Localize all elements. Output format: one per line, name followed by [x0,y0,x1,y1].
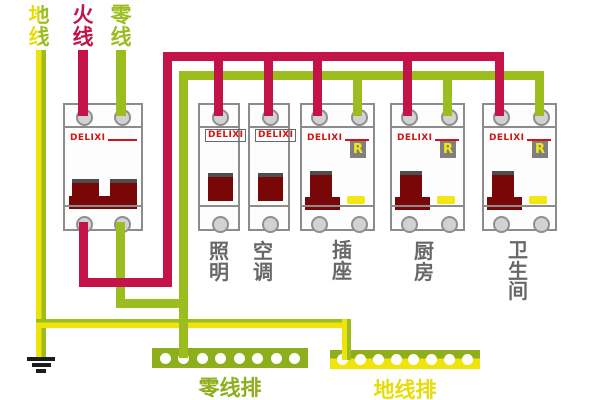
switch-handle-base[interactable] [395,197,430,210]
breaker-air-conditioner: DELIXI [248,103,290,231]
neutral-distribution-bus [179,71,544,80]
divider [483,126,556,128]
switch-handle[interactable] [492,171,514,197]
circuit-label-lighting: 照明 [208,241,230,282]
ground-bus-bar [330,350,480,369]
divider [301,126,374,128]
rcd-badge: R [440,141,456,158]
bus-bar-hole [408,354,419,365]
trip-indicator [437,196,455,204]
ground-wire-horizontal [36,319,351,328]
wiring-diagram: 地线 火线 零线 DELIXI [0,0,600,400]
bus-bar-hole [462,354,473,365]
neutral-riser-to-busbar [179,71,188,358]
switch-bar[interactable] [69,196,137,209]
ground-bus-label: 地线排 [330,374,480,400]
neutral-drop-socket [353,80,362,116]
brand-underline [108,139,137,141]
divider [483,205,556,207]
divider [249,205,289,207]
live-drop-kitchen [403,61,412,116]
bus-bar-hole [215,353,226,364]
breaker-socket: DELIXI R [300,103,375,231]
brand-label: DELIXI [397,134,432,143]
earth-symbol-bar1 [27,357,55,361]
terminal [351,216,368,233]
rcd-badge: R [350,141,366,158]
live-drop-socket [313,61,322,116]
breaker-kitchen: DELIXI R [390,103,465,231]
neutral-main-output-horizontal [116,299,188,308]
live-drop-lighting [214,61,223,116]
breaker-bathroom: DELIXI R [482,103,557,231]
live-drop-bathroom [495,52,504,116]
live-wire-label: 火线 [71,5,95,48]
breaker-main: DELIXI [63,103,143,231]
divider [199,205,239,207]
brand-row: DELIXI [70,131,137,143]
divider [391,126,464,128]
bus-bar-hole [271,353,282,364]
bus-bar-hole [197,353,208,364]
brand-label: DELIXI [489,134,524,143]
neutral-main-output-vertical [116,222,125,308]
terminal [212,216,229,233]
divider [301,205,374,207]
trip-indicator [347,196,365,204]
brand-label: DELIXI [205,129,246,142]
bus-bar-hole [252,353,263,364]
ground-wire-vertical [36,50,46,358]
neutral-wire-label: 零线 [109,5,133,48]
divider [249,126,289,128]
brand-label: DELIXI [70,134,105,143]
switch-handle-base[interactable] [305,197,340,210]
neutral-bus-bar [152,348,308,368]
rcd-badge: R [532,141,548,158]
live-main-output-horizontal [79,278,172,287]
live-drop-air-conditioner [264,61,273,116]
brand-label: DELIXI [307,134,342,143]
neutral-bus-label: 零线排 [152,372,308,400]
terminal [493,216,510,233]
bus-bar-hole [373,354,384,365]
earth-symbol-bar2 [32,363,51,367]
circuit-label-bathroom: 卫生间 [507,240,529,302]
terminal [311,216,328,233]
breaker-lighting: DELIXI [198,103,240,231]
trip-indicator [529,196,547,204]
brand-label: DELIXI [255,129,296,142]
bus-bar-hole [160,353,171,364]
divider [64,126,142,128]
ground-wire-label: 地线 [27,5,51,48]
switch-handle-base[interactable] [487,197,522,210]
circuit-label-kitchen: 厨房 [413,241,435,282]
terminal [441,216,458,233]
bus-bar-hole [355,354,366,365]
circuit-label-air-conditioner: 空调 [252,241,274,282]
bus-bar-hole [391,354,402,365]
circuit-label-socket: 插座 [331,240,353,281]
live-supply-wire [78,50,88,116]
earth-symbol-bar3 [36,369,46,373]
divider [199,126,239,128]
neutral-drop-kitchen [443,80,452,116]
ground-wire-busbar-drop [342,319,351,360]
switch-handle[interactable] [258,173,283,201]
switch-handle[interactable] [400,171,422,197]
divider [64,205,142,207]
neutral-supply-wire [116,50,126,116]
live-distribution-bus [163,52,504,61]
switch-handle[interactable] [310,171,332,197]
bus-bar-hole [289,353,300,364]
terminal [401,216,418,233]
bus-bar-hole [426,354,437,365]
terminal [533,216,550,233]
neutral-drop-bathroom [535,71,544,116]
switch-handle[interactable] [110,179,137,197]
divider [391,205,464,207]
switch-handle[interactable] [208,173,233,201]
bus-bar-hole [234,353,245,364]
bus-bar-hole [444,354,455,365]
switch-handle[interactable] [72,179,99,197]
live-riser [163,52,172,287]
terminal [262,216,279,233]
